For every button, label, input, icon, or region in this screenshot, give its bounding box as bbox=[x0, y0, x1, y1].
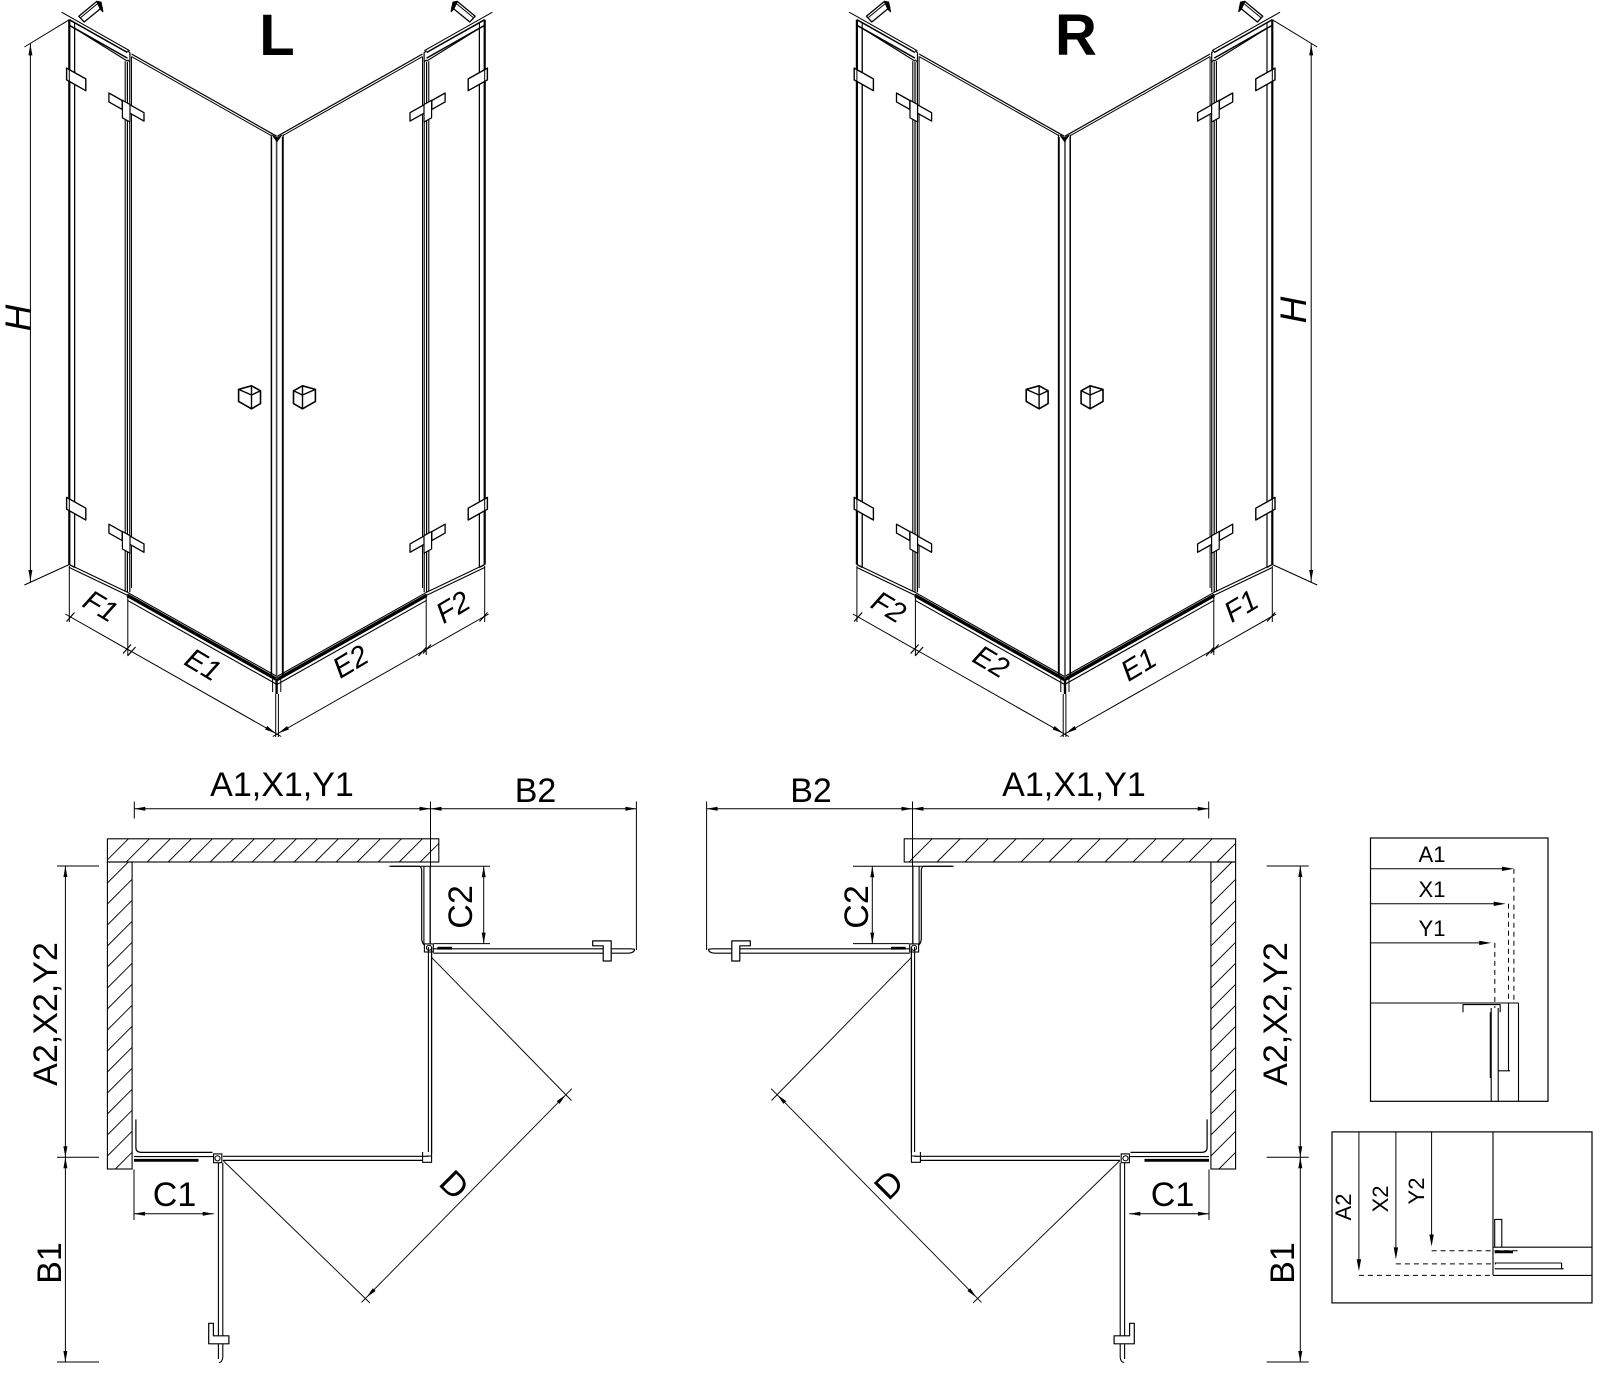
svg-text:C1: C1 bbox=[1151, 1176, 1194, 1214]
svg-text:B2: B2 bbox=[515, 772, 557, 810]
svg-text:X2: X2 bbox=[1368, 1185, 1393, 1212]
svg-text:Y1: Y1 bbox=[1419, 916, 1446, 941]
svg-text:A2,X2,Y2: A2,X2,Y2 bbox=[27, 942, 65, 1086]
svg-text:H: H bbox=[0, 304, 39, 331]
svg-text:C2: C2 bbox=[442, 885, 480, 928]
svg-text:A1: A1 bbox=[1419, 842, 1446, 867]
svg-text:A2: A2 bbox=[1331, 1194, 1356, 1221]
svg-text:R: R bbox=[1055, 3, 1097, 68]
svg-text:B2: B2 bbox=[790, 772, 832, 810]
svg-text:A1,X1,Y1: A1,X1,Y1 bbox=[210, 766, 354, 804]
svg-text:C1: C1 bbox=[153, 1176, 196, 1214]
svg-text:A1,X1,Y1: A1,X1,Y1 bbox=[1002, 766, 1146, 804]
svg-text:C2: C2 bbox=[838, 885, 876, 928]
svg-text:L: L bbox=[259, 3, 294, 68]
svg-text:H: H bbox=[1273, 296, 1314, 323]
svg-text:A2,X2,Y2: A2,X2,Y2 bbox=[1257, 942, 1295, 1086]
svg-text:Y2: Y2 bbox=[1404, 1178, 1429, 1205]
svg-text:B1: B1 bbox=[31, 1242, 69, 1284]
svg-text:X1: X1 bbox=[1419, 877, 1446, 902]
svg-text:B1: B1 bbox=[1264, 1242, 1302, 1284]
